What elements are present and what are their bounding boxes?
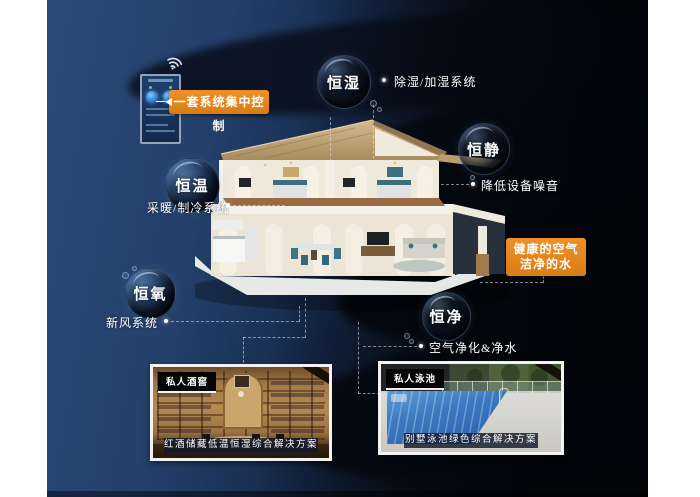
- bottom-edge-strip: [47, 491, 648, 497]
- dashed-connector: [373, 105, 374, 169]
- bubble-label: 恒温: [175, 175, 209, 196]
- bubble-label: 恒氧: [133, 283, 167, 304]
- photo-tag: 私人泳池: [386, 369, 444, 388]
- mini-bubble: [132, 266, 137, 271]
- dashed-connector: [363, 346, 417, 347]
- wine-cellar-photo: 私人酒窖 红酒储藏低温恒湿综合解决方案: [150, 364, 332, 461]
- bubble-constant-clean: 恒净: [422, 292, 471, 341]
- bubble-constant-humidity: 恒湿: [317, 55, 371, 109]
- phone-screen-header: [148, 79, 173, 82]
- pool-photo: 私人泳池 别墅泳池绿色综合解决方案: [378, 361, 564, 455]
- highlight-healthy-air-water: 健康的空气 洁净的水: [506, 238, 586, 276]
- wall-art: [234, 375, 250, 388]
- dashed-connector: [431, 184, 469, 185]
- dashed-connector: [358, 322, 359, 394]
- bubble-constant-quiet: 恒静: [458, 123, 510, 175]
- connector-dot: [382, 78, 386, 82]
- dashed-connector: [243, 337, 244, 363]
- mini-bubble: [377, 107, 382, 112]
- bubble-label: 恒净: [429, 306, 463, 327]
- highlight-line1: 健康的空气: [508, 242, 584, 257]
- dashed-connector: [358, 393, 380, 394]
- bubble-constant-oxygen: 恒氧: [125, 268, 176, 319]
- photo-caption: 红酒储藏低温恒湿综合解决方案: [164, 438, 319, 453]
- phone-screen-row: [146, 130, 175, 132]
- dashed-connector: [233, 205, 285, 206]
- pool-ladder: [499, 388, 509, 403]
- poster-panel: 一套系统集中控制 恒湿 恒静 恒温 恒氧 恒净 除湿/加湿系统 降低设备噪音 采…: [47, 0, 648, 497]
- mini-bubble: [470, 175, 475, 180]
- highlight-line2: 洁净的水: [508, 257, 584, 272]
- note-noise-reduction: 降低设备噪音: [481, 177, 559, 194]
- mini-bubble: [122, 272, 129, 279]
- arrow-left-icon: [165, 98, 172, 106]
- note-air-water-purify: 空气净化&净水: [429, 339, 517, 356]
- wine-cellar-image: 私人酒窖 红酒储藏低温恒湿综合解决方案: [153, 367, 329, 458]
- connector-dot: [419, 344, 423, 348]
- wine-bottles: [271, 374, 324, 432]
- photo-caption: 别墅泳池绿色综合解决方案: [404, 433, 537, 448]
- bubble-label: 恒静: [467, 139, 501, 160]
- dashed-connector: [480, 282, 543, 283]
- dashed-connector: [330, 117, 331, 177]
- control-label: 一套系统集中控制: [169, 90, 269, 114]
- pool-image: 私人泳池 别墅泳池绿色综合解决方案: [381, 364, 561, 452]
- note-fresh-air: 新风系统: [106, 314, 158, 331]
- poster-canvas: { "poster": { "theme": "smart-home-whole…: [0, 0, 700, 497]
- status-led: [169, 86, 172, 89]
- connector-dot: [226, 203, 230, 207]
- mini-bubble: [404, 333, 410, 339]
- photo-tag: 私人酒窖: [158, 372, 216, 391]
- dashed-connector: [305, 298, 306, 338]
- dashed-connector: [171, 321, 299, 322]
- note-heating-cooling: 采暖/制冷系统: [147, 199, 229, 216]
- leader-line: [156, 101, 165, 102]
- phone-screen-row: [146, 114, 175, 116]
- dashed-connector: [243, 337, 305, 338]
- bubble-label: 恒湿: [327, 72, 361, 93]
- note-dehumidify-humidify: 除湿/加湿系统: [394, 73, 476, 90]
- wifi-icon: [165, 55, 183, 70]
- mini-bubble: [370, 100, 377, 107]
- connector-dot: [164, 319, 168, 323]
- mini-bubble: [409, 339, 414, 344]
- pool-steps: [391, 394, 407, 402]
- status-led: [149, 86, 152, 89]
- dashed-connector: [299, 306, 300, 322]
- flower-vase: [238, 391, 244, 397]
- phone-screen-row: [146, 124, 168, 126]
- connector-dot: [471, 182, 475, 186]
